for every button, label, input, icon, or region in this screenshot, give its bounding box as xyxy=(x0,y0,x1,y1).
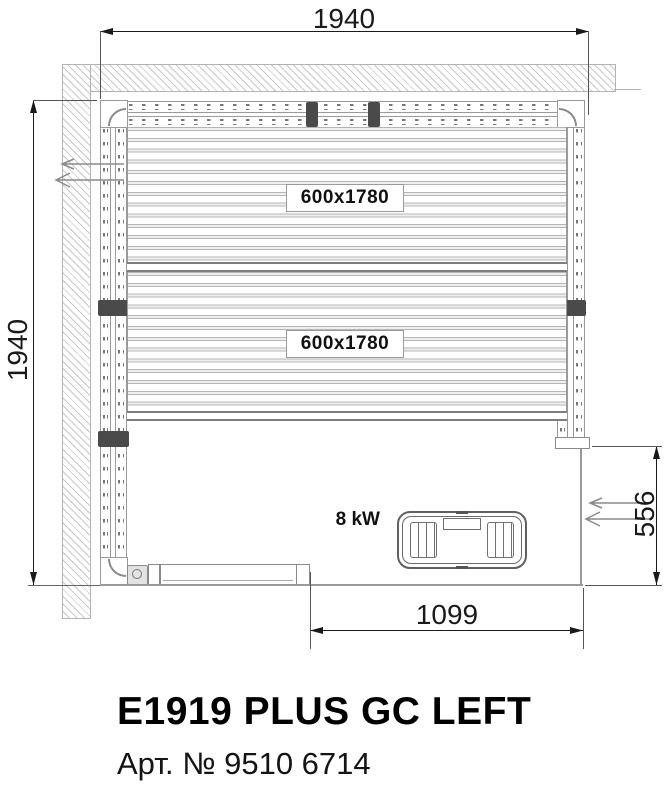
dim-door-text: 556 xyxy=(629,466,657,562)
corner-post-top-left xyxy=(100,100,128,128)
dim-door-arrow-top xyxy=(653,446,660,459)
dim-door-line xyxy=(656,446,657,585)
heater-control-panel xyxy=(443,518,481,530)
door-glass-line xyxy=(580,449,582,585)
sauna-floorplan-drawing: 1940 1940 600x1780 600x17 xyxy=(0,0,672,791)
dim-front-arrow-left xyxy=(310,627,323,634)
dim-top-arrow-left xyxy=(100,28,113,35)
front-baseline-ext xyxy=(28,585,100,586)
dim-door-ext-bottom xyxy=(585,585,662,586)
airflow-arrows-icon xyxy=(48,156,126,188)
dim-top-ext-right xyxy=(588,31,589,115)
front-corner-connector xyxy=(127,565,148,585)
dim-left-line xyxy=(33,100,34,585)
top-frame-outer-rail xyxy=(100,101,585,113)
front-baseline xyxy=(100,584,583,586)
heater-stone-section-left xyxy=(410,522,437,558)
left-wall-stud xyxy=(98,431,129,447)
article-number: Арт. № 9510 6714 xyxy=(117,746,371,782)
bench-lower-size-label: 600x1780 xyxy=(286,330,404,358)
dim-top-line xyxy=(100,31,589,32)
top-wall-hatch xyxy=(62,64,616,92)
bench-upper-size-text: 600x1780 xyxy=(301,187,390,209)
left-wall-stud xyxy=(98,300,129,316)
dim-front-ext-right xyxy=(583,588,584,649)
dim-top-ext-left xyxy=(100,31,101,99)
bench-lower-size-text: 600x1780 xyxy=(301,333,390,355)
top-wall-stud xyxy=(368,102,380,127)
drawing-title: E1919 PLUS GC LEFT xyxy=(117,690,531,734)
heater xyxy=(397,511,527,569)
dim-left-ext-top xyxy=(33,100,97,101)
heater-bottom-tick xyxy=(456,566,468,569)
corner-post-bottom-left xyxy=(100,557,128,585)
dim-front-ext-left xyxy=(310,572,311,649)
right-frame-outer-rail xyxy=(573,100,585,448)
dim-front-arrow-right xyxy=(570,627,583,634)
top-wall-stud xyxy=(306,102,318,127)
heater-top-tick xyxy=(456,511,468,514)
top-wall-baseline xyxy=(614,89,641,90)
heater-power-label: 8 kW xyxy=(290,509,380,531)
right-wall-end-post xyxy=(555,437,590,449)
dim-door-ext-top xyxy=(592,446,662,447)
dim-front-text: 1099 xyxy=(382,599,512,631)
dim-left-arrow-top xyxy=(30,100,37,113)
bench-lower-front-edge xyxy=(127,411,567,421)
dim-front-line xyxy=(310,630,583,631)
dim-left-text: 1940 xyxy=(2,300,30,400)
left-wall-hatch xyxy=(62,64,91,619)
heater-stone-section-right xyxy=(487,522,514,558)
front-glass-panel xyxy=(148,564,310,585)
bench-upper-front-edge xyxy=(127,262,567,272)
bench-upper-size-label: 600x1780 xyxy=(286,184,404,212)
dim-left-arrow-bottom xyxy=(30,572,37,585)
dim-door-arrow-bottom xyxy=(653,572,660,585)
corner-post-top-right xyxy=(557,100,585,128)
